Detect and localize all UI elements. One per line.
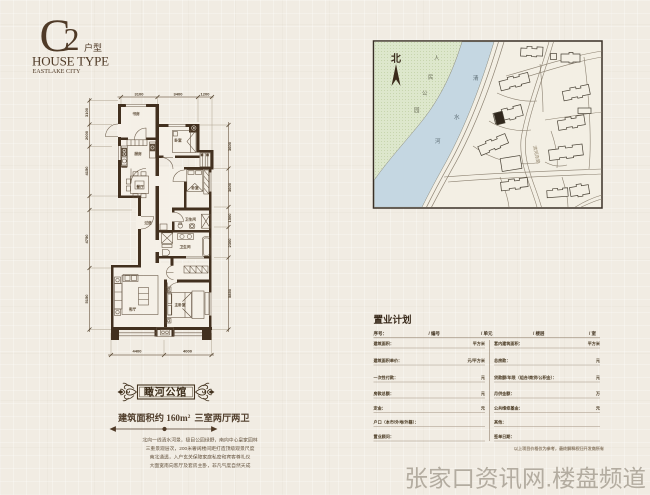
svg-text:元: 元 — [481, 390, 485, 396]
svg-text:北: 北 — [391, 52, 401, 65]
svg-text:序号：: 序号： — [373, 330, 388, 337]
svg-text:5850: 5850 — [227, 288, 232, 298]
svg-text:建筑面积约 160m2三室两厅两卫: 建筑面积约 160m2三室两厅两卫 — [117, 412, 250, 423]
svg-text:南北通透，入户玄关保障家庭私密和宾客尊礼仪: 南北通透，入户玄关保障家庭私密和宾客尊礼仪 — [150, 454, 251, 461]
svg-text:过道: 过道 — [144, 220, 152, 225]
svg-text:元/平方米: 元/平方米 — [467, 357, 485, 363]
svg-text:3400: 3400 — [174, 92, 184, 97]
svg-text:主卧室: 主卧室 — [174, 302, 185, 307]
svg-text:1500: 1500 — [227, 213, 232, 223]
svg-text:公共维修基金：: 公共维修基金： — [494, 405, 523, 411]
svg-text:瞰河公馆: 瞰河公馆 — [144, 386, 187, 399]
svg-text:/ 楼层: / 楼层 — [533, 330, 545, 337]
svg-text:书房: 书房 — [132, 111, 140, 116]
svg-text:元: 元 — [481, 405, 485, 411]
svg-text:以上项目价格仅为参考，最终解释权归开发商所有: 以上项目价格仅为参考，最终解释权归开发商所有 — [514, 445, 604, 451]
svg-text:张家口资讯网.楼盘频道: 张家口资讯网.楼盘频道 — [404, 466, 646, 492]
svg-text:卫生间: 卫生间 — [185, 217, 196, 222]
svg-text:卧室: 卧室 — [174, 138, 182, 143]
svg-text:4750: 4750 — [84, 234, 89, 244]
svg-text:/ 单元: / 单元 — [481, 330, 493, 337]
svg-text:户型: 户型 — [84, 42, 102, 53]
svg-text:元: 元 — [596, 374, 600, 380]
svg-text:3100: 3100 — [135, 92, 145, 97]
svg-text:餐厅: 餐厅 — [135, 184, 144, 189]
svg-text:HOUSE TYPE: HOUSE TYPE — [32, 54, 109, 69]
svg-text:/ 室: / 室 — [589, 330, 597, 337]
svg-text:总房款：: 总房款： — [494, 357, 510, 363]
svg-text:套内建筑面积：: 套内建筑面积： — [494, 340, 523, 346]
svg-text:置业计划: 置业计划 — [374, 314, 412, 326]
svg-text:3100: 3100 — [84, 107, 89, 117]
svg-text:平方米: 平方米 — [588, 340, 601, 346]
svg-text:河: 河 — [435, 137, 441, 145]
svg-text:/ 编号: / 编号 — [429, 330, 441, 337]
svg-text:2000: 2000 — [84, 130, 89, 140]
svg-text:一次性付款：: 一次性付款： — [374, 374, 399, 380]
svg-text:卫生间: 卫生间 — [179, 244, 190, 249]
svg-text:卧室: 卧室 — [191, 185, 199, 190]
svg-text:2300: 2300 — [227, 238, 232, 248]
svg-text:签单日期：: 签单日期： — [493, 433, 514, 439]
svg-text:园: 园 — [414, 107, 420, 114]
svg-text:3600: 3600 — [227, 141, 232, 151]
svg-text:人: 人 — [434, 55, 440, 62]
svg-text:2: 2 — [64, 21, 80, 57]
svg-text:元: 元 — [596, 357, 600, 363]
svg-text:水: 水 — [454, 113, 460, 121]
svg-text:5150: 5150 — [84, 294, 89, 304]
svg-text:大面宽南向客厅及套房主卧，非凡气度自然天成: 大面宽南向客厅及套房主卧，非凡气度自然天成 — [150, 462, 251, 469]
svg-text:定金：: 定金： — [373, 405, 386, 411]
svg-text:公: 公 — [422, 91, 428, 97]
svg-text:4000: 4000 — [183, 349, 193, 354]
svg-text:三重景观层次，200米奢阔楼间距打造顶级观景尺度: 三重景观层次，200米奢阔楼间距打造顶级观景尺度 — [146, 445, 255, 452]
svg-text:房款总额：: 房款总额： — [374, 390, 394, 396]
svg-text:户口（本市/外地/外籍）：: 户口（本市/外地/外籍）： — [374, 419, 419, 425]
svg-text:EASTLAKE CITY: EASTLAKE CITY — [33, 68, 81, 75]
svg-text:元: 元 — [481, 374, 485, 380]
svg-text:置业顾问：: 置业顾问： — [374, 433, 394, 439]
svg-text:贷款额/年限（组合/商贷/公积金）：: 贷款额/年限（组合/商贷/公积金）： — [494, 374, 557, 380]
svg-text:建筑面积：: 建筑面积： — [373, 340, 394, 346]
svg-text:平方米: 平方米 — [473, 340, 486, 346]
svg-text:其他：: 其他： — [494, 419, 506, 425]
svg-text:万: 万 — [595, 390, 600, 396]
svg-text:元: 元 — [596, 405, 600, 411]
svg-text:1200: 1200 — [201, 92, 211, 97]
svg-text:客厅: 客厅 — [128, 307, 137, 312]
svg-text:北向一线清水河景，极目公园绿野，南向中心皇家园林: 北向一线清水河景，极目公园绿野，南向中心皇家园林 — [142, 437, 257, 444]
svg-text:月供金额：: 月供金额： — [493, 390, 514, 396]
svg-text:4400: 4400 — [133, 349, 143, 354]
svg-text:清: 清 — [473, 74, 479, 82]
svg-text:厨房: 厨房 — [134, 151, 142, 156]
svg-text:建筑面积单价：: 建筑面积单价： — [373, 357, 403, 363]
svg-text:民: 民 — [428, 74, 434, 81]
svg-text:3600: 3600 — [227, 182, 232, 192]
svg-text:4150: 4150 — [84, 166, 89, 176]
